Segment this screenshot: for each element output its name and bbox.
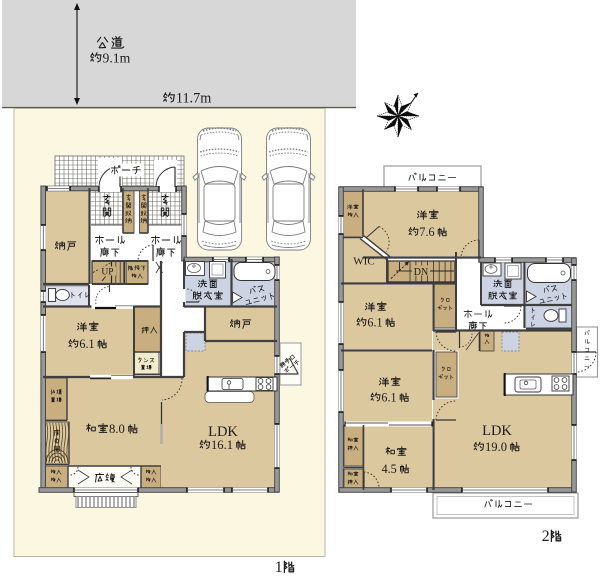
svg-text:7.6: 7.6 [419, 225, 434, 239]
svg-text:6.1: 6.1 [79, 337, 94, 351]
svg-text:LDK: LDK [482, 423, 512, 439]
svg-text:2: 2 [542, 528, 550, 545]
svg-text:9.1m: 9.1m [103, 50, 131, 65]
svg-text:6.1: 6.1 [367, 315, 382, 329]
svg-text:DN: DN [414, 267, 428, 278]
svg-text:8.0: 8.0 [109, 422, 125, 436]
svg-text:16.1: 16.1 [211, 438, 233, 452]
svg-text:11.7m: 11.7m [176, 91, 211, 107]
svg-text:4.5: 4.5 [382, 462, 397, 476]
svg-text:6.1: 6.1 [381, 390, 396, 404]
svg-text:WIC: WIC [353, 256, 374, 268]
svg-text:UP: UP [101, 268, 113, 278]
svg-text:19.0: 19.0 [485, 440, 507, 454]
svg-text:1: 1 [275, 559, 283, 576]
